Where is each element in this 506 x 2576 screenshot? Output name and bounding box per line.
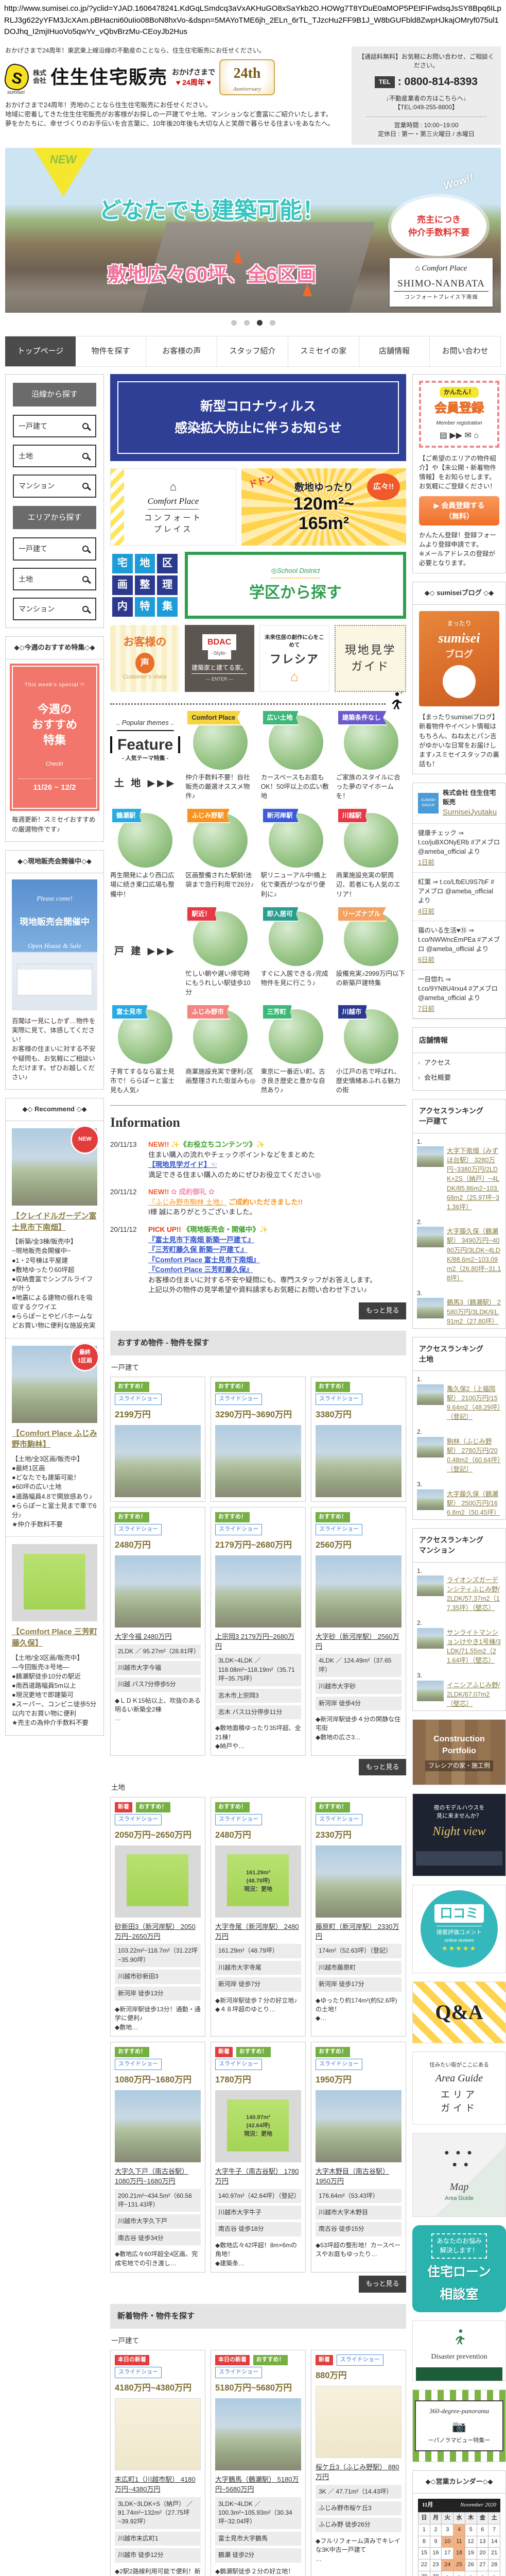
more-button[interactable]: もっと見る <box>359 1759 406 1776</box>
feature-caption: 区画整備された駅前!池袋まで急行利用で26分♪ <box>185 871 255 889</box>
feature-caption: 仲介手数料不要！自社販売の厳選オススメ物件♪ <box>185 773 255 801</box>
property-layout-size: 176.64m²（53.43坪） <box>316 2189 402 2203</box>
more-button[interactable]: もっと見る <box>359 1302 406 1319</box>
open-house-banner[interactable]: Please come! 現地販売会開催中 Open House & Sale <box>12 879 97 1011</box>
disaster-prevention-banner[interactable]: Disaster prevention <box>412 2320 506 2381</box>
ranking-link[interactable]: 駒林（ふじみ野駅） 2780万円/200.48m2（60.64坪）（登記） <box>447 1437 501 1475</box>
property-image[interactable] <box>215 2398 301 2470</box>
search-by-rail-button[interactable]: 沿線から探す <box>13 383 96 406</box>
feature-ribbon-label: 川越駅 <box>337 808 368 823</box>
feature-theme-item[interactable]: 川越市 小江戸の名で呼ばれ、歴史情緒あふれる魅力の街 <box>336 1004 406 1095</box>
slideshow-button[interactable]: スライドショー <box>115 2367 162 2378</box>
property-price: 5180万円~5680万円 <box>215 2382 301 2395</box>
property-image[interactable] <box>115 1555 201 1628</box>
feature-theme-item[interactable]: 即入居可 すぐに入居できる♪完成物件を見に行こう♪ <box>261 906 331 997</box>
ranking-number: 1. <box>417 1138 501 1146</box>
recommend-badge: おすすめ！ <box>215 1512 250 1522</box>
shop-info-link[interactable]: 会社概要 <box>413 1068 505 1083</box>
new-badge: 本日の新着 <box>215 2355 250 2365</box>
property-search-input[interactable]: 土地 <box>13 445 96 467</box>
ranking-item: 1. 亀久保2（上福岡駅） 2100万円/159.64m2（48.29坪）（登記… <box>413 1371 505 1423</box>
listing-badge: NEW <box>71 1125 99 1154</box>
info-property-link[interactable]: 『Comfort Place 三芳町藤久保』 <box>148 1265 377 1275</box>
property-description: ◆ＬＤＫ15帖以上、吹抜のある明るい新築全2棟 … <box>115 1697 201 1723</box>
property-access: 志木 バス11分停歩11分 <box>215 1705 301 1719</box>
land-readjustment-banner[interactable]: 宅 地 区 画 整 理 内 特 集 <box>110 552 180 619</box>
property-search-input[interactable]: マンション <box>13 474 96 497</box>
property-search-input[interactable]: 一戸建て <box>13 537 96 560</box>
property-description: ◆新河岸駅徒歩７分の好立地♪ ◆４８坪超のゆとり… <box>215 1996 301 2014</box>
feature-theme-item[interactable]: 新河岸駅 駅リニューアル中!橋上化で東西がつながり便利に♪ <box>261 808 331 899</box>
news-text: 住まい購入の流れやチェックポイントなどをまとめた <box>148 1150 321 1160</box>
lightning-logo-icon: Ssumisei <box>5 64 29 90</box>
school-district-banner[interactable]: ◎School District 学区から探す <box>185 552 406 619</box>
property-description: ◆鶴瀬駅徒歩２分の好立地！ ◆徒歩５分圏内に商業… <box>215 2567 301 2576</box>
search-input-label: 土地 <box>19 574 33 584</box>
ranking-number: 1. <box>417 1375 501 1384</box>
browser-url-text: http://www.sumisei.co.jp/?yclid=YJAD.160… <box>0 0 506 39</box>
panorama-banner[interactable]: 360-degree-panorama 📷 ーパノラマビュー特集ー <box>412 2389 506 2462</box>
property-access: 鶴瀬 徒歩2分 <box>215 2548 301 2562</box>
star-rating-icons: ★★★★★ <box>442 1944 477 1954</box>
register-button[interactable]: ▶ 会員登録する （無料） <box>419 496 499 526</box>
search-icon <box>82 423 89 429</box>
twitter-avatar: SUMISEI GROUP <box>418 793 439 814</box>
ranking-thumbnail <box>417 1489 444 1510</box>
slideshow-button[interactable]: スライドショー <box>115 1814 162 1825</box>
property-card: おすすめ！ スライドショー 3290万円~3690万円 <box>211 1377 306 1502</box>
site-tour-guide-banner[interactable]: 現地見学 ガイド <box>335 625 406 692</box>
feature-theme-item[interactable]: 鶴瀬駅 再生開発により西口広場に続き東口広場も整備中！ <box>110 808 180 899</box>
tile-character: 整 <box>135 575 155 595</box>
feature-theme-item[interactable]: ふじみ野駅 区画整備された駅前!池袋まで急行利用で26分♪ <box>185 808 255 899</box>
recommend-badge: おすすめ！ <box>236 2047 271 2057</box>
property-card: 新着 おすすめ！ スライドショー 2050万円~2650万円 砂新田3（新河岸駅… <box>110 1797 205 2037</box>
registration-step-icons: ▤ ▶▶ ✉ ⌂ <box>425 430 493 442</box>
project-name-card: ⌂ Comfort Place SHIMO-NANBATA コンフォートプレイス… <box>390 258 493 307</box>
ranking-link[interactable]: ライオンズガーデンシティふじみ野/2LDK/57.37m2（17.35坪）（壁芯… <box>447 1575 501 1613</box>
recommend-badge: おすすめ！ <box>215 1802 250 1812</box>
news-date: 20/11/13 <box>110 1140 140 1180</box>
ranking-item: 1. 大字下南畑（みずほ台駅） 3280万円~3380万円/2LDK+2S（納戸… <box>413 1133 505 1214</box>
tweet: 健康チェック ⇒ t.co/juBXONyERb #アメブロ @ameba_of… <box>413 824 505 873</box>
property-image[interactable] <box>316 2090 402 2162</box>
property-price: 2199万円 <box>115 1409 201 1421</box>
furesia-banner[interactable]: 未来住居の創作に心をこめて フレシア ⌂ <box>259 625 330 692</box>
property-price: 2179万円~2680万円 <box>215 1539 301 1552</box>
hero-headline: どなたでも建築可能！ <box>5 194 418 227</box>
property-card: 本日の新着 スライドショー 4180万円~4380万円 末広町1（川越市駅） 4… <box>110 2350 205 2576</box>
slideshow-button[interactable]: スライドショー <box>215 2059 262 2070</box>
listing-photo[interactable]: 最終 1区画 <box>12 1346 97 1423</box>
slideshow-button[interactable]: スライドショー <box>337 2354 383 2366</box>
listing-photo[interactable]: NEW <box>12 1128 97 1206</box>
search-by-area-button[interactable]: エリアから探す <box>13 506 96 530</box>
new-badge: 新着 <box>115 1802 132 1812</box>
listing-title-link[interactable]: 【Comfort Place 三芳町藤久保】 <box>12 1626 97 1649</box>
property-access: 新河岸 徒歩4分 <box>316 1697 402 1710</box>
news-text: I様 誠にありがとうございました。 <box>148 1207 303 1217</box>
map-area-guide-banner[interactable]: ● ● ● ● ● Map Area Guide <box>412 2133 506 2217</box>
tweet-time-link[interactable]: 7日前 <box>418 1004 434 1013</box>
property-access: 南古谷 徒歩34分 <box>115 2231 201 2245</box>
feature-theme-item[interactable]: Comfort Place 仲介手数料不要！自社販売の厳選オススメ物件♪ <box>185 710 255 801</box>
property-price: 1950万円 <box>316 2074 402 2087</box>
feature-ribbon-label: リーズナブル <box>337 906 387 922</box>
property-price: 2480万円 <box>215 1829 301 1842</box>
customer-voice-banner[interactable]: お客様の 声 Customer's Voice <box>110 625 180 692</box>
property-layout-size: 3K ／ 47.71m²（14.43坪） <box>316 2485 402 2499</box>
recommend-badge: おすすめ！ <box>115 2047 149 2057</box>
property-image[interactable] <box>316 1425 402 1497</box>
property-title-link[interactable]: 大字鶴馬（鶴瀬駅） 5180万円~5680万円 <box>215 2475 301 2495</box>
project-title: SHIMO-NANBATA <box>394 277 488 292</box>
property-title-link[interactable]: 大字砂（新河岸駅） 2560万円 <box>316 1632 402 1652</box>
feature-theme-item[interactable]: 広い土地 カースペースもお庭もOK！50坪以上の広い敷地 <box>261 710 331 801</box>
property-layout-size: 2LDK ／ 95.27m²（28.81坪） <box>115 1645 201 1658</box>
feature-theme-item[interactable]: リーズナブル 設備充実♪2999万円以下の新築戸建特集 <box>336 906 406 997</box>
ranking-thumbnail <box>417 1146 444 1167</box>
property-image[interactable] <box>316 1845 402 1918</box>
ranking-thumbnail <box>417 1384 444 1405</box>
property-image[interactable]: 161.29m² (48.79坪) 現況：更地 <box>215 1845 301 1918</box>
ranking-item: 2. 大字藤久保（鶴瀬駅） 3490万円~4080万円/3LDK~4LDK/88… <box>413 1214 505 1285</box>
property-image[interactable] <box>115 2090 201 2162</box>
ranking-item: 3. 大字藤久保（鶴瀬駅） 2500万円/166.8m2（50.45坪） <box>413 1476 505 1519</box>
feature-heading: .. Popular themes .. Feature - 人気テーマ特集 -… <box>110 710 180 801</box>
feature-theme-item[interactable]: ふじみ野市 商業施設充実で便利♪区画整理された街並みも◎ <box>185 1004 255 1095</box>
business-calendar: ◆◇営業カレンダー◇◆ 11月November 2020日月火水木金土12345… <box>412 2470 506 2576</box>
guide-link[interactable]: 【現地見学ガイド】☜ <box>148 1160 217 1170</box>
property-description: ◆ゆったり約174m²(約52.6坪)の土地！ ◆… <box>316 1996 402 2023</box>
property-card: おすすめ！ スライドショー 2560万円 大字砂（新河岸駅） 2560万円 4L… <box>311 1507 406 1756</box>
feature-caption: 忙しい朝や遅い帰宅時にもうれしい駅徒歩10分 <box>185 969 255 997</box>
slideshow-button[interactable]: スライドショー <box>215 1524 262 1535</box>
property-address: 川越市大字今福 <box>115 1661 201 1675</box>
ranking-link[interactable]: 大字藤久保（鶴瀬駅） 2500万円/166.8m2（50.45坪） <box>447 1489 501 1517</box>
listing-description: 【新築/全3棟/販売中】 ~現地販売会開催中~ ●1・2号棟は平屋建 ●敷地ゆっ… <box>12 1237 97 1330</box>
property-title-link[interactable]: 砂新田3（新河岸駅） 2050万円~2650万円 <box>115 1922 201 1942</box>
property-price: 2560万円 <box>316 1539 402 1552</box>
intro-text: おかげさまで24周年！売地のことなら住生住宅販売にお任せください。 地域に密着し… <box>5 100 345 128</box>
ranking-land-header: アクセスランキング 土地 <box>413 1337 505 1371</box>
slider-dot[interactable] <box>244 320 250 326</box>
calendar-november: 11月November 2020日月火水木金土12345678910111213… <box>413 2499 505 2576</box>
recommend-badge: おすすめ！ <box>316 1512 350 1522</box>
construction-portfolio-banner[interactable]: Construction Portfolio フレシアの家・施工例 <box>412 1719 506 1785</box>
property-title-link[interactable]: 藤原町（新河岸駅） 2330万円 <box>316 1922 402 1942</box>
site-header: おかげさまで24周年！東武東上線沿線の不動産のことなら、住生住宅販売にお任せくだ… <box>5 46 501 145</box>
listing-description: 【土地/全3区画/販売中】 ●最終1区画 ●どなたでも建築可能！ ●60坪の広い… <box>12 1454 97 1529</box>
qa-banner[interactable]: Q&A <box>412 1981 506 2043</box>
nav-top[interactable]: トップページ <box>5 336 76 366</box>
category-label-house: 一戸建て <box>111 2336 405 2346</box>
recommend-badge: おすすめ！ <box>316 2047 350 2057</box>
info-property-link[interactable]: 『富士見市下南畑 新築一戸建て』 <box>148 1235 377 1245</box>
feature-caption: 子育てするなら富士見市で！ららぽーと富士見も人気♪ <box>110 1067 180 1095</box>
blog-text: 【まったりsumiseiブログ】 新着物件やイベント情報はもちろん、ねね太とパン… <box>419 713 499 769</box>
tweet-text: 猫のいる生活♥⑮ ⇒ t.co/NWWncEmPEa #アメブロ @ameba_… <box>418 926 500 954</box>
info-property-link[interactable]: 『Comfort Place 富士見市下南畑』 <box>148 1255 377 1265</box>
property-access: 新河岸 徒歩7分 <box>215 1977 301 1991</box>
recommended-section-header: おすすめ物件 - 物件を探す <box>110 1331 406 1355</box>
feature-ribbon-label: 駅近！ <box>186 906 217 922</box>
twitter-company-name: 株式会社 住生住宅販売 <box>443 788 500 807</box>
property-layout-size: 4LDK ／ 124.49m²（37.65坪） <box>316 1654 402 1677</box>
recommend-badge: おすすめ！ <box>316 1382 350 1392</box>
ranking-link[interactable]: 大字下南畑（みずほ台駅） 3280万円~3380万円/2LDK+2S（納戸）~4… <box>447 1146 501 1212</box>
business-hours: 営業時間 : 10:00~19:00 <box>357 121 496 130</box>
search-input-label: 一戸建て <box>19 421 47 431</box>
property-layout-size: 3LDK~4LDK ／ 100.3m²~105.93m²（30.34坪~32.0… <box>215 2497 301 2529</box>
ranking-number: 3. <box>417 1289 501 1298</box>
property-description: ◆新河岸駅徒歩４分の閑静な住宅街 ◆敷地の広さ3… <box>316 1715 402 1742</box>
property-title-link[interactable]: 大字牛子（南古谷駅） 1780万円 <box>215 2167 301 2187</box>
corona-notice-banner[interactable]: 新型コロナウィルス 感染拡大防止に伴うお知らせ <box>110 374 406 461</box>
property-price: 4180万円~4380万円 <box>115 2382 201 2395</box>
spacious-lot-banner[interactable]: ドドン 敷地ゆったり 120m²~ 165m² 広々!! <box>241 468 406 546</box>
anniversary-note: おかげさまで♥ 24周年 ♥ <box>172 67 215 88</box>
info-property-link[interactable]: 『三芳町藤久保 新築一戸建て』 <box>148 1245 377 1255</box>
property-price: 1080万円~1680万円 <box>115 2074 201 2087</box>
slider-dot[interactable] <box>270 320 275 326</box>
weekly-special-caption: 毎週更新！スミセイおすすめの厳選物件です♪ <box>12 815 97 834</box>
listing-photo[interactable] <box>12 1544 97 1621</box>
property-image[interactable] <box>316 2386 402 2458</box>
running-person-icon <box>450 2328 468 2346</box>
blog-header: ◆◇ sumiseiブログ ◇◆ <box>413 582 505 605</box>
property-price: 1780万円 <box>215 2074 301 2087</box>
shop-info-link[interactable]: アクセス <box>413 1053 505 1068</box>
weekly-special-header: ◆◇今週のおすすめ特集◇◆ <box>6 637 103 659</box>
property-search-input[interactable]: 土地 <box>13 568 96 590</box>
property-price: 2330万円 <box>316 1829 402 1842</box>
house-icon: ⌂ <box>170 479 177 495</box>
new-flag: NEW <box>33 148 93 197</box>
listing-description: 【土地/全3区画/販売中】 ―今回販売③号地― ●鶴瀬駅徒歩10分の駅近 ●南西… <box>12 1653 97 1728</box>
property-price: 2480万円 <box>115 1539 201 1552</box>
property-address: 川越市大字寺尾 <box>215 1961 301 1975</box>
ranking-link[interactable]: 亀久保2（上福岡駅） 2100万円/159.64m2（48.29坪）（登記） <box>447 1384 501 1422</box>
property-description: ◆53坪超の整形地！カースペースやお庭もゆったり… <box>316 2241 402 2259</box>
slideshow-button[interactable]: スライドショー <box>215 2367 262 2378</box>
project-subtitle: コンフォートプレイス下南畑 <box>394 294 488 302</box>
ranking-link[interactable]: イニシアふじみ野/2LDK/67.07m2（壁芯） <box>447 1681 501 1708</box>
property-description: ◆敷地広々60坪超全4区画、完成宅地での引き渡し… <box>115 2250 201 2268</box>
ranking-link[interactable]: サンライトマンションけやき1号棟/3LDK/71.55m2（21.64坪）（壁芯… <box>447 1628 501 1666</box>
property-title-link[interactable]: 大字寺尾（新河岸駅） 2480万円 <box>215 1922 301 1942</box>
property-card: おすすめ！ スライドショー 2480万円 161.29m² (48.79坪) 現… <box>211 1797 306 2037</box>
ranking-link[interactable]: 大字藤久保（鶴瀬駅） 3490万円~4080万円/3LDK~4LDK/88.6m… <box>447 1227 501 1283</box>
bear-mascot <box>443 665 476 698</box>
property-image[interactable]: 140.97m² (42.64坪) 現況：更地 <box>215 2090 301 2162</box>
property-title-link[interactable]: 末広町1（川越市駅） 4180万円~4380万円 <box>115 2475 201 2495</box>
slider-dot[interactable] <box>231 320 237 326</box>
tweet-text: 一目惚れ ⇒ t.co/9YN8U4rxu4 #アメブロ @ameba_offi… <box>418 975 500 1003</box>
property-card: 新着 おすすめ！ スライドショー 1780万円 140.97m² (42.64坪… <box>211 2042 306 2273</box>
slideshow-button[interactable]: スライドショー <box>115 2059 162 2070</box>
property-title-link[interactable]: 上宗岡3 2179万円~2680万円 <box>215 1632 301 1652</box>
tile-character: 特 <box>135 597 155 617</box>
feature-theme-item[interactable]: 川越駅 商業施設充実の駅周辺、若者にも人気のエリア！ <box>336 808 406 899</box>
property-card: おすすめ！ スライドショー 2480万円 大字今福 2480万円 2LDK ／ … <box>110 1507 205 1756</box>
blog-banner[interactable]: まったり sumisei ブログ <box>419 611 499 706</box>
slideshow-button[interactable]: スライドショー <box>215 1814 262 1825</box>
property-title-link[interactable]: 大字木野目（南古谷駅） 1950万円 <box>316 2167 402 2187</box>
property-access: 川越市 徒歩12分 <box>115 2548 201 2562</box>
new-arrivals-section-header: 新着物件・物件を探す <box>110 2304 406 2329</box>
slideshow-button[interactable]: スライドショー <box>316 1524 362 1535</box>
nav-shop-info[interactable]: 店舗情報 <box>359 336 430 366</box>
slider-dot-active[interactable] <box>257 320 263 326</box>
feature-theme-item[interactable]: 富士見市 子育てするなら富士見市で！ららぽーと富士見も人気♪ <box>110 1004 180 1095</box>
recommend-listing: 【Comfort Place 三芳町藤久保】 【土地/全3区画/販売中】 ―今回… <box>6 1537 103 1735</box>
hero-slider[interactable]: NEW どなたでも建築可能！ 敷地広々60坪、全6区画 Wow!! 売主につき … <box>5 148 501 313</box>
tweet-text: 健康チェック ⇒ t.co/juBXONyERb #アメブロ @ameba_of… <box>418 828 500 856</box>
property-title-link[interactable]: 大字久下戸（南古谷駅） 1080万円~1680万円 <box>115 2167 201 2187</box>
holidays: 定休日 : 第一・第三火曜日 / 水曜日 <box>357 130 496 139</box>
tile-character: 画 <box>112 575 133 595</box>
property-image[interactable] <box>215 1425 301 1497</box>
property-image[interactable] <box>115 1845 201 1918</box>
feature-ribbon-label: 新河岸駅 <box>262 808 299 823</box>
member-registration-banner[interactable]: かんたん！ 会員登録 Member registration ▤ ▶▶ ✉ ⌂ <box>419 381 499 448</box>
property-card: 新着 スライドショー 880万円 桜ケ丘3（ふじみ野駅） 880万円 3K ／ … <box>311 2350 406 2576</box>
property-address: 川越市大字木野目 <box>316 2206 402 2219</box>
tile-character: 区 <box>157 554 178 573</box>
tile-character: 集 <box>157 597 178 617</box>
open-house-caption: 百聞は一見にしかず…物件を実際に見て、体感してください！ お客様の住まいに対する… <box>12 1016 97 1082</box>
category-label-land: 土地 <box>111 1783 405 1793</box>
main-content: 新型コロナウィルス 感染拡大防止に伴うお知らせ ⌂ Comfort Place … <box>110 374 406 2576</box>
property-title-link[interactable]: 桜ケ丘3（ふじみ野駅） 880万円 <box>316 2463 402 2482</box>
sold-property-link[interactable]: 『ふじみ野市駒林 土地』 <box>148 1197 226 1208</box>
property-access: 川越 バス7分停歩5分 <box>115 1677 201 1691</box>
tweet-time-link[interactable]: 6日前 <box>418 955 434 964</box>
property-card: おすすめ！ スライドショー 2330万円 藤原町（新河岸駅） 2330万円 17… <box>311 1797 406 2037</box>
tweet-time-link[interactable]: 1日前 <box>418 858 434 867</box>
feature-caption: 商業施設充実の駅周辺、若者にも人気のエリア！ <box>336 871 406 899</box>
nav-contact[interactable]: お問い合わせ <box>430 336 501 366</box>
feature-theme-item[interactable]: 建築条件なし ご家族のスタイルに合った夢のマイホームを！ <box>336 710 406 801</box>
slideshow-button[interactable]: スライドショー <box>316 1814 362 1825</box>
news-text: 上記以外の物件の見学希望や資料請求もお気軽にお問い合わせ下さい♪ <box>148 1285 377 1295</box>
property-address: 富士見市大字鶴馬 <box>215 2532 301 2546</box>
feature-theme-item[interactable]: 駅近！ 忙しい朝や遅い帰宅時にもうれしい駅徒歩10分 <box>185 906 255 997</box>
feature-ribbon-label: 広い土地 <box>262 710 299 725</box>
comfort-place-logo: ⌂ Comfort Place <box>394 263 488 275</box>
reviews-banner[interactable]: 口コミ 接客評価コメント online reviews ★★★★★ <box>412 1885 506 1973</box>
listing-title-link[interactable]: 【Comfort Place ふじみ野市駒林】 <box>12 1428 97 1451</box>
nav-sumisei-house[interactable]: スミセイの家 <box>288 336 359 366</box>
recommend-listing: NEW 【クレイドルガーデン富士見市下南畑】 【新築/全3棟/販売中】 ~現地販… <box>6 1121 103 1338</box>
bdac-style-banner[interactable]: BDAC -Style- 建築家と建てる家。 ― ENTER ― <box>185 625 254 692</box>
ranking-link[interactable]: 鶴馬3（鶴瀬駅） 2580万円/3LDK/91.91m2（27.80坪） <box>447 1298 501 1326</box>
feature-caption: 再生開発により西口広場に続き東口広場も整備中！ <box>110 871 180 899</box>
header-tagline: おかげさまで24周年！東武東上線沿線の不動産のことなら、住生住宅販売にお任せくだ… <box>5 46 345 55</box>
nav-staff[interactable]: スタッフ紹介 <box>217 336 288 366</box>
property-layout-size: 3LDK~3LDK+S（納戸） ／ 91.74m²~132m²（27.75坪~3… <box>115 2497 201 2529</box>
nav-voice[interactable]: お客様の声 <box>146 336 217 366</box>
property-image[interactable] <box>316 1555 402 1628</box>
property-price: 3290万円~3690万円 <box>215 1409 301 1421</box>
ranking-number: 3. <box>417 1480 501 1489</box>
area-guide-banner[interactable]: 住みたい街がここにある Area Guide エリア ガイド <box>412 2052 506 2125</box>
property-address: 川越市大字久下戸 <box>115 2214 201 2228</box>
shop-info-header: 店舗情報 <box>413 1028 505 1053</box>
more-button[interactable]: もっと見る <box>359 2276 406 2293</box>
property-image[interactable] <box>115 1425 201 1497</box>
wow-decoration: Wow!! <box>442 171 476 194</box>
property-image[interactable] <box>215 1555 301 1628</box>
night-view-banner[interactable]: 夜のモデルハウスを 見に来ませんか？ Night view <box>412 1793 506 1876</box>
information-title: Information <box>110 1113 406 1132</box>
feature-ribbon-label: ふじみ野市 <box>186 1004 230 1020</box>
tile-character: 地 <box>135 554 155 573</box>
feature-ribbon-label: 富士見市 <box>111 1004 148 1020</box>
listing-title-link[interactable]: 【クレイドルガーデン富士見市下南畑】 <box>12 1211 97 1233</box>
property-layout-size: 103.22m²~118.7m²（31.22坪~35.90坪） <box>115 1944 201 1967</box>
property-search-input[interactable]: 一戸建て <box>13 415 96 437</box>
phone-note: 【通話料無料】お気軽にお問い合わせ、ご相談ください。 <box>357 53 496 71</box>
search-icon <box>82 606 89 612</box>
weekly-special-banner[interactable]: This week's special !! 今週の おすすめ 特集 Check… <box>12 666 97 809</box>
recommend-badge: おすすめ！ <box>115 1512 149 1522</box>
property-title-link[interactable]: 大字今福 2480万円 <box>115 1632 201 1642</box>
ranking-house-header: アクセスランキング 一戸建て <box>413 1099 505 1133</box>
property-access: 南古谷 徒歩15分 <box>316 2222 402 2236</box>
feature-caption: カースペースもお庭もOK！50坪以上の広い敷地 <box>261 773 331 801</box>
company-logo[interactable]: Ssumisei 株式 会社 住生住宅販売 おかげさまで♥ 24周年 ♥ 24t… <box>5 59 345 95</box>
twitter-account-link[interactable]: SumiseiJyutaku <box>443 808 497 817</box>
feature-theme-item[interactable]: 三芳町 東京に一番近い町。古き良き歴史と豊かな自然あり♪ <box>261 1004 331 1095</box>
slideshow-button[interactable]: スライドショー <box>115 1524 162 1535</box>
news-date: 20/11/12 <box>110 1225 140 1295</box>
land-row-label: 土 地 ▶▶▶ <box>110 776 180 791</box>
property-access: 新河岸 徒歩17分 <box>316 1977 402 1991</box>
comfort-place-banner[interactable]: ⌂ Comfort Place コンフォート プレイス <box>110 468 236 546</box>
hero-subheadline: 敷地広々60坪、全6区画 <box>5 261 418 290</box>
feature-ribbon-label: 三芳町 <box>262 1004 293 1020</box>
feature-ribbon-label: 鶴瀬駅 <box>111 808 142 823</box>
feature-caption: すぐに入居できる♪完成物件を見に行こう♪ <box>261 969 331 988</box>
tweet-time-link[interactable]: 4日前 <box>418 907 434 916</box>
slideshow-button[interactable]: スライドショー <box>316 1394 362 1405</box>
property-access: 南古谷 徒歩18分 <box>215 2222 301 2236</box>
property-image[interactable] <box>115 2398 201 2470</box>
night-house-photo <box>416 1845 502 1866</box>
property-card: 本日の新着 おすすめ！ スライドショー 5180万円~5680万円 大字鶴馬（鶴… <box>211 2350 306 2576</box>
ranking-thumbnail <box>417 1227 444 1247</box>
member-text: 【ご希望のエリアの物件紹介】や【未公開・新着物件情報】をお知らせします。お気軽に… <box>419 454 499 492</box>
slideshow-button[interactable]: スライドショー <box>215 1394 262 1405</box>
property-card: おすすめ！ スライドショー 2179万円~2680万円 上宗岡3 2179万円~… <box>211 1507 306 1756</box>
nav-search[interactable]: 物件を探す <box>76 336 147 366</box>
ranking-number: 3. <box>417 1671 501 1680</box>
recommend-badge: おすすめ！ <box>215 1382 250 1392</box>
feature-caption: 商業施設充実で便利♪区画整理された街並みも◎ <box>185 1067 255 1086</box>
ranking-thumbnail <box>417 1681 444 1701</box>
slideshow-button[interactable]: スライドショー <box>115 1394 162 1405</box>
new-badge: 新着 <box>316 2355 333 2365</box>
recommend-header: ◆◇ Recommend ◇◆ <box>6 1098 103 1121</box>
home-loan-consultation-banner[interactable]: あなたのお悩み 解決します！ 住宅ローン 相談室 <box>412 2225 506 2312</box>
property-search-input[interactable]: マンション <box>13 598 96 620</box>
camera-icon: 📷 <box>418 2418 500 2435</box>
slideshow-button[interactable]: スライドショー <box>316 2059 362 2070</box>
property-card: おすすめ！ スライドショー 3380万円 <box>311 1377 406 1502</box>
open-house-header: ◆◇現地販売会開催中◇◆ <box>6 851 103 873</box>
